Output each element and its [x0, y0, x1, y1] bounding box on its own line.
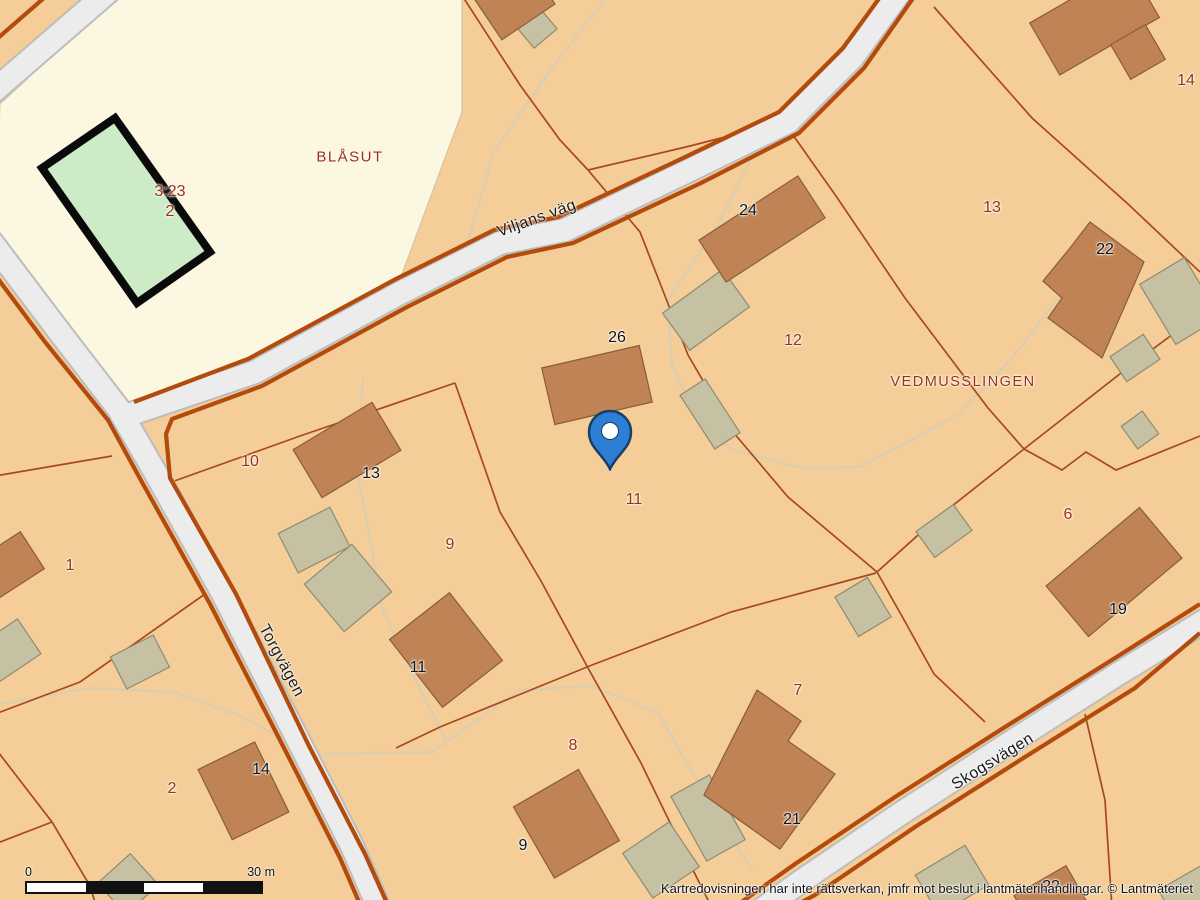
scale-segment	[144, 883, 203, 892]
parcel-number: 2	[168, 781, 177, 797]
parcel-number: 14	[1177, 73, 1195, 89]
parcel-number: 13	[983, 200, 1001, 216]
place-label: BLÅSUT	[316, 150, 383, 165]
boundary	[1085, 714, 1112, 900]
outbuilding	[1140, 258, 1200, 345]
outbuilding	[835, 577, 891, 636]
outbuilding	[1121, 411, 1158, 449]
building-number: 9	[519, 838, 528, 854]
building-number: 19	[1109, 602, 1127, 618]
boundary	[0, 456, 112, 476]
house	[0, 532, 44, 600]
boundary	[788, 128, 1024, 449]
scale-segment	[86, 883, 145, 892]
location-pin[interactable]	[587, 409, 633, 471]
house	[293, 402, 401, 497]
scale-end-label: 30 m	[247, 865, 275, 879]
outbuilding	[1110, 334, 1160, 381]
outbuilding	[663, 270, 750, 351]
parcel-number: 7	[794, 683, 803, 699]
parcel-number: 11	[626, 492, 643, 508]
building-number: 13	[362, 466, 380, 482]
building-number: 26	[608, 330, 626, 346]
building-number: 24	[739, 203, 757, 219]
outbuilding	[0, 619, 41, 685]
outbuilding	[680, 379, 740, 449]
building-number: 14	[252, 762, 270, 778]
scale-segment	[27, 883, 86, 892]
building-number: 11	[410, 660, 427, 676]
scale-segment	[203, 883, 262, 892]
parcel-number: 1	[66, 558, 75, 574]
house	[513, 769, 619, 878]
building-number: 21	[783, 812, 801, 828]
parcel-number: 10	[241, 454, 259, 470]
house	[1043, 222, 1144, 358]
parcel-number: 3:23	[154, 184, 185, 200]
house	[198, 742, 289, 840]
outbuilding	[110, 635, 169, 689]
parcel-number: 2	[166, 204, 175, 220]
attribution-text: Kartredovisningen har inte rättsverkan, …	[661, 881, 1193, 896]
parcel-number: 9	[446, 537, 455, 553]
boundary	[877, 572, 985, 722]
boundary	[0, 822, 52, 844]
road-skogsvagen	[750, 620, 1200, 900]
scale-bar-segments	[25, 881, 263, 894]
house	[699, 176, 825, 282]
outbuilding	[916, 505, 972, 558]
parcel-number: 12	[784, 333, 802, 349]
map-canvas[interactable]: BLÅSUTVEDMUSSLINGEN3:2321091287111213146…	[0, 0, 1200, 900]
scale-start-label: 0	[25, 865, 32, 879]
location-pin-hole	[602, 423, 619, 440]
house	[390, 593, 503, 708]
trail	[0, 686, 752, 868]
parcel-number: 8	[569, 738, 578, 754]
place-label: VEDMUSSLINGEN	[890, 375, 1035, 390]
boundary	[1024, 436, 1200, 470]
parcel-number: 6	[1064, 507, 1073, 523]
building-number: 22	[1096, 242, 1114, 258]
